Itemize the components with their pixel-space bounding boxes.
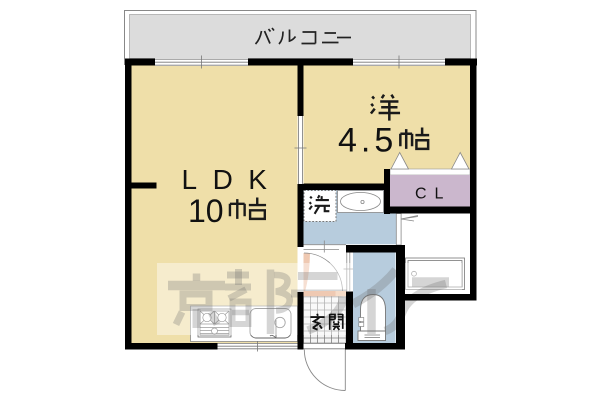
svg-text:4.5: 4.5	[338, 122, 397, 160]
svg-text:LDK: LDK	[182, 164, 283, 195]
svg-text:CL: CL	[415, 186, 451, 203]
svg-text:10: 10	[188, 193, 224, 229]
